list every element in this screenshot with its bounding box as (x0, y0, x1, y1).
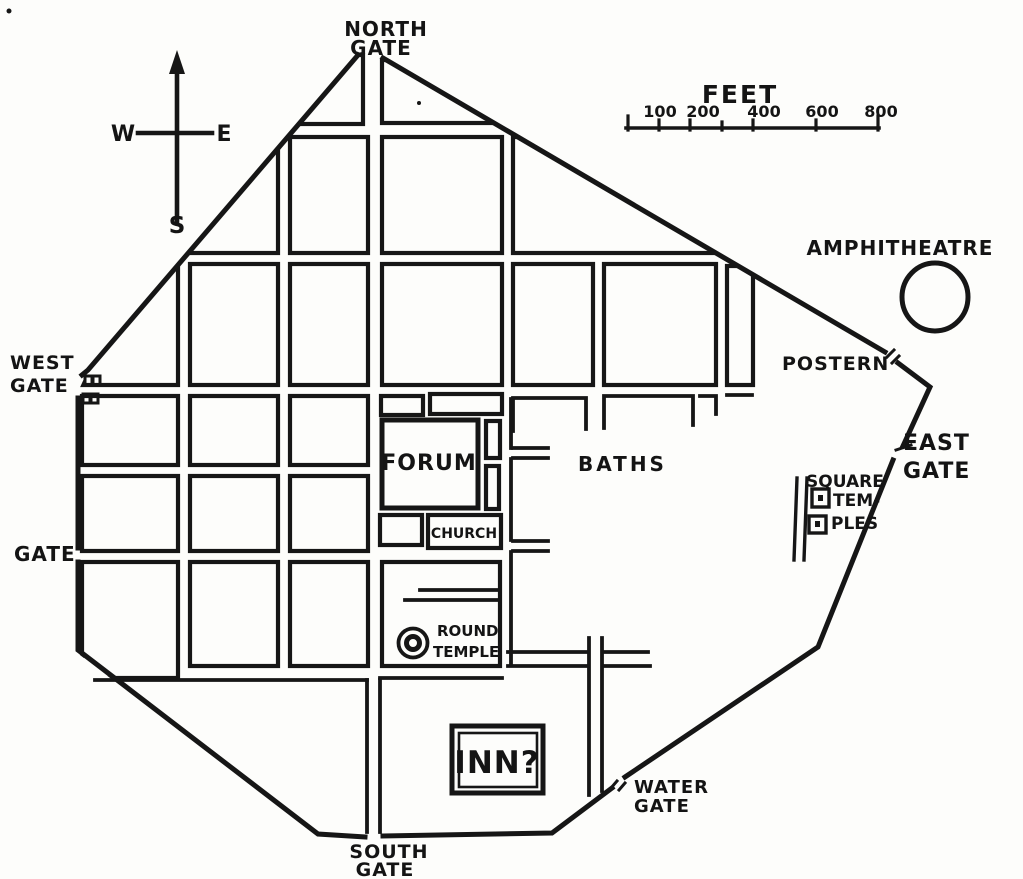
label-baths: BATHS (578, 452, 667, 476)
insula-block (82, 476, 178, 551)
insula-block (290, 396, 368, 465)
label-forum: FORUM (381, 451, 476, 476)
label-water-gate: GATE (634, 796, 690, 817)
compass-north-arrow-icon (169, 50, 185, 74)
insula-block (190, 476, 278, 551)
compass-rose: W E S (111, 50, 232, 239)
forum-annex (380, 515, 422, 545)
insula-block (290, 562, 368, 666)
label-east-gate: GATE (903, 459, 970, 484)
water-gate-street (589, 638, 602, 795)
scale-bar: FEET 100 200 400 600 800 (626, 80, 898, 130)
insula-block (290, 264, 368, 385)
label-water-gate: WATER (634, 777, 709, 798)
street-grid-blocks (82, 55, 753, 678)
insula-block (82, 396, 178, 465)
insula-block (604, 264, 716, 385)
amphitheatre-icon (902, 263, 968, 331)
label-west-gate: WEST (10, 352, 75, 374)
baths-street-stubs (511, 395, 752, 663)
label-east-gate: EAST (903, 431, 970, 456)
scale-tick-label: 100 (643, 102, 676, 121)
insula-block (190, 562, 278, 666)
map-canvas: W E S FEET 100 200 400 600 800 NORTH GAT… (0, 0, 1023, 879)
label-round-temple: ROUND (437, 622, 499, 640)
insula-block (190, 396, 278, 465)
label-square-temples: TEM- (833, 491, 880, 511)
south-gate-street (367, 680, 380, 832)
scale-tick-label: 400 (747, 102, 780, 121)
insula-block (290, 137, 368, 253)
insula-block (513, 264, 593, 385)
insula-block (382, 264, 502, 385)
compass-west-label: W (111, 122, 135, 147)
label-round-temple: TEMPLE (433, 643, 499, 661)
label-square-temples: SQUARE (806, 472, 884, 492)
insula-block (82, 562, 178, 678)
label-inn: INN? (454, 745, 539, 781)
forum-annex (486, 421, 500, 458)
label-north-gate: GATE (350, 36, 412, 60)
label-square-temples: PLES (831, 514, 878, 534)
forum-annex (486, 466, 499, 509)
label-gate-southwest: GATE (14, 542, 76, 566)
insula-block (727, 266, 753, 385)
insula-block (290, 476, 368, 551)
compass-east-label: E (216, 122, 231, 147)
insula-block (382, 137, 502, 253)
insula-block (190, 264, 278, 385)
forum-annex (430, 394, 502, 414)
label-west-gate: GATE (10, 375, 69, 397)
label-postern: POSTERN (782, 353, 889, 375)
compass-south-label: S (169, 213, 186, 239)
scale-tick-label: 200 (686, 102, 719, 121)
label-church: CHURCH (431, 526, 497, 542)
scale-tick-label: 800 (864, 102, 897, 121)
scale-tick-label: 600 (805, 102, 838, 121)
forum-annex (381, 396, 423, 415)
label-amphitheatre: AMPHITHEATRE (807, 236, 994, 260)
town-plan-map: W E S FEET 100 200 400 600 800 NORTH GAT… (0, 0, 1023, 879)
label-south-gate: GATE (356, 859, 415, 879)
